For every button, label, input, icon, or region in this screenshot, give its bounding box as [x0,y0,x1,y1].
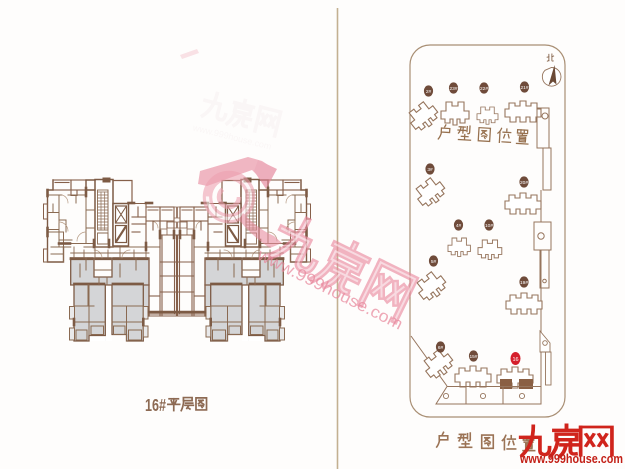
svg-text:22#: 22# [480,86,488,92]
svg-text:16: 16 [512,357,518,363]
svg-text:5#: 5# [431,259,437,265]
svg-text:www.999house.com: www.999house.com [519,451,623,466]
svg-text:15#: 15# [469,354,477,360]
svg-text:23#: 23# [449,86,457,92]
svg-text:19#: 19# [520,280,528,286]
svg-text:www.999house.com: www.999house.com [191,122,273,151]
svg-text:6#: 6# [438,345,444,351]
svg-text:10#: 10# [485,223,493,229]
svg-text:2#: 2# [426,89,432,95]
svg-text:20#: 20# [520,180,528,186]
svg-text:21#: 21# [520,85,528,91]
svg-text:4#: 4# [456,223,462,229]
svg-text:3#: 3# [427,167,433,173]
svg-text:16#: 16# [145,395,166,415]
